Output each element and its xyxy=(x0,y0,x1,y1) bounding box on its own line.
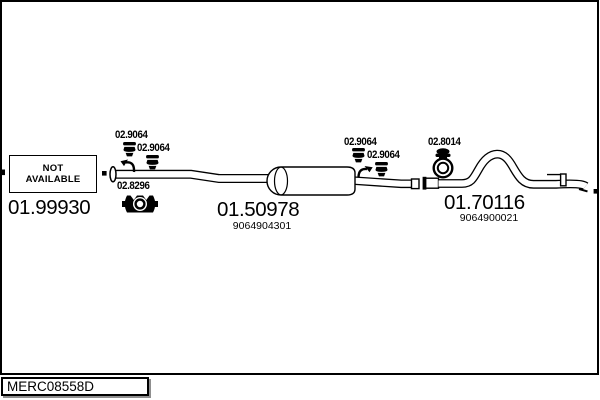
oem-number-rear: 9064900021 xyxy=(445,213,533,224)
part-number-middle: 01.50978 xyxy=(217,200,299,220)
middle-silencer xyxy=(267,167,355,195)
drawing-code: MERC08558D xyxy=(7,379,94,394)
fitting-label-hanger-4: 02.9064 xyxy=(367,150,400,161)
rubber-hanger-icon xyxy=(374,162,389,177)
fitting-label-clamp-front: 02.8296 xyxy=(117,181,150,192)
fitting-label-hanger-3: 02.9064 xyxy=(344,137,377,148)
connector-dot xyxy=(102,171,107,176)
hanger-hook-rear xyxy=(359,166,373,178)
part-number-rear: 01.70116 xyxy=(444,193,525,213)
fitting-label-clamp-rear: 02.8014 xyxy=(428,137,461,148)
oem-number-middle: 9064904301 xyxy=(218,221,306,232)
pipe-clamp-icon xyxy=(122,193,158,215)
not-available-line1: NOT xyxy=(43,163,64,174)
part-number-front: 01.99930 xyxy=(8,198,90,218)
exhaust-system-diagram: NOT AVAILABLE 01.99930 01.50978 90649043… xyxy=(0,0,600,400)
border-connector-dot-left xyxy=(0,170,5,176)
not-available-box: NOT AVAILABLE xyxy=(9,155,97,193)
fitting-label-hanger-1: 02.9064 xyxy=(115,130,148,141)
silencer-outlet-pipe xyxy=(352,179,419,189)
rubber-hanger-icon xyxy=(145,155,160,170)
ring-clamp-icon xyxy=(431,148,455,180)
drawing-code-box: MERC08558D xyxy=(1,377,149,396)
not-available-line2: AVAILABLE xyxy=(26,174,81,185)
border-connector-dot-right xyxy=(594,189,599,194)
rubber-hanger-icon xyxy=(351,148,366,163)
rubber-hanger-icon xyxy=(122,142,137,157)
fitting-label-hanger-2: 02.9064 xyxy=(137,143,170,154)
